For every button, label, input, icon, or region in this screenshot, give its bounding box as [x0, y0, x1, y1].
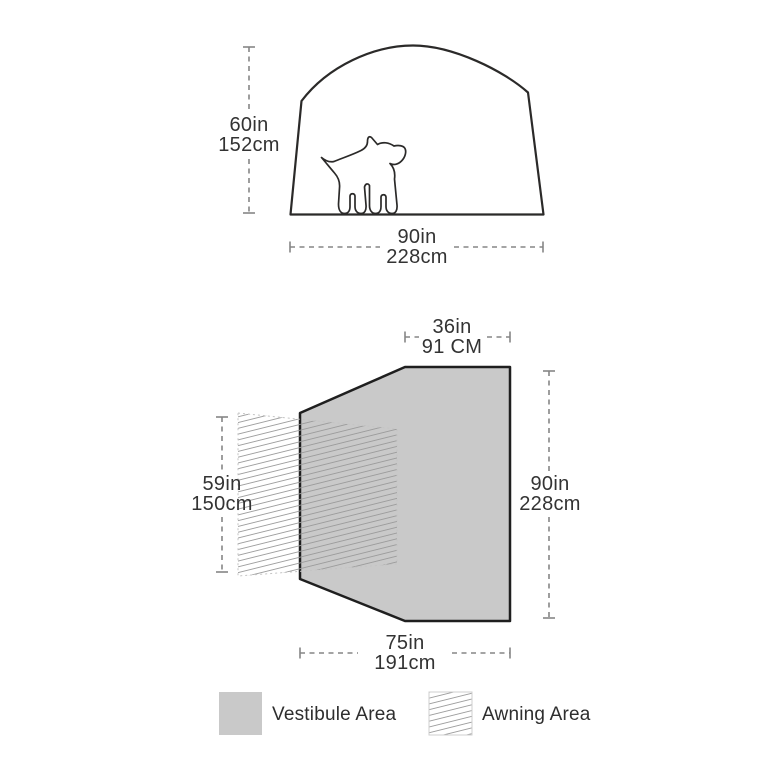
tent-height-cm: 152cm	[218, 134, 280, 156]
floor-top-inches: 36in	[432, 316, 471, 338]
floor-plan-diagram: 36in 91 CM 90in 228cm 59in 150cm	[191, 316, 581, 674]
floor-right-dimension: 90in 228cm	[519, 371, 581, 618]
diagram-canvas: 60in 152cm 90in 228cm 36in 91 CM	[0, 0, 780, 780]
vestibule-swatch	[219, 692, 262, 735]
floor-top-dimension: 36in 91 CM	[405, 316, 510, 358]
floor-top-cm: 91 CM	[422, 336, 482, 358]
tent-profile-diagram: 60in 152cm 90in 228cm	[218, 46, 543, 269]
tent-width-cm: 228cm	[386, 246, 448, 268]
tent-spec-diagram: 60in 152cm 90in 228cm 36in 91 CM	[0, 0, 780, 780]
floor-right-cm: 228cm	[519, 493, 581, 515]
tent-width-inches: 90in	[397, 226, 436, 248]
floor-left-cm: 150cm	[191, 493, 253, 515]
floor-bottom-cm: 191cm	[374, 652, 436, 674]
awning-area-shape	[238, 413, 397, 576]
awning-legend-label: Awning Area	[482, 704, 591, 725]
awning-swatch	[429, 692, 472, 735]
tent-outline	[291, 46, 544, 215]
tent-height-dimension: 60in 152cm	[218, 47, 280, 213]
legend: Vestibule Area Awning Area	[219, 692, 591, 735]
floor-bottom-inches: 75in	[385, 632, 424, 654]
tent-width-dimension: 90in 228cm	[290, 226, 543, 268]
floor-bottom-dimension: 75in 191cm	[300, 632, 510, 674]
floor-left-inches: 59in	[202, 473, 241, 495]
floor-right-inches: 90in	[530, 473, 569, 495]
vestibule-legend-label: Vestibule Area	[272, 704, 397, 725]
tent-height-inches: 60in	[229, 114, 268, 136]
